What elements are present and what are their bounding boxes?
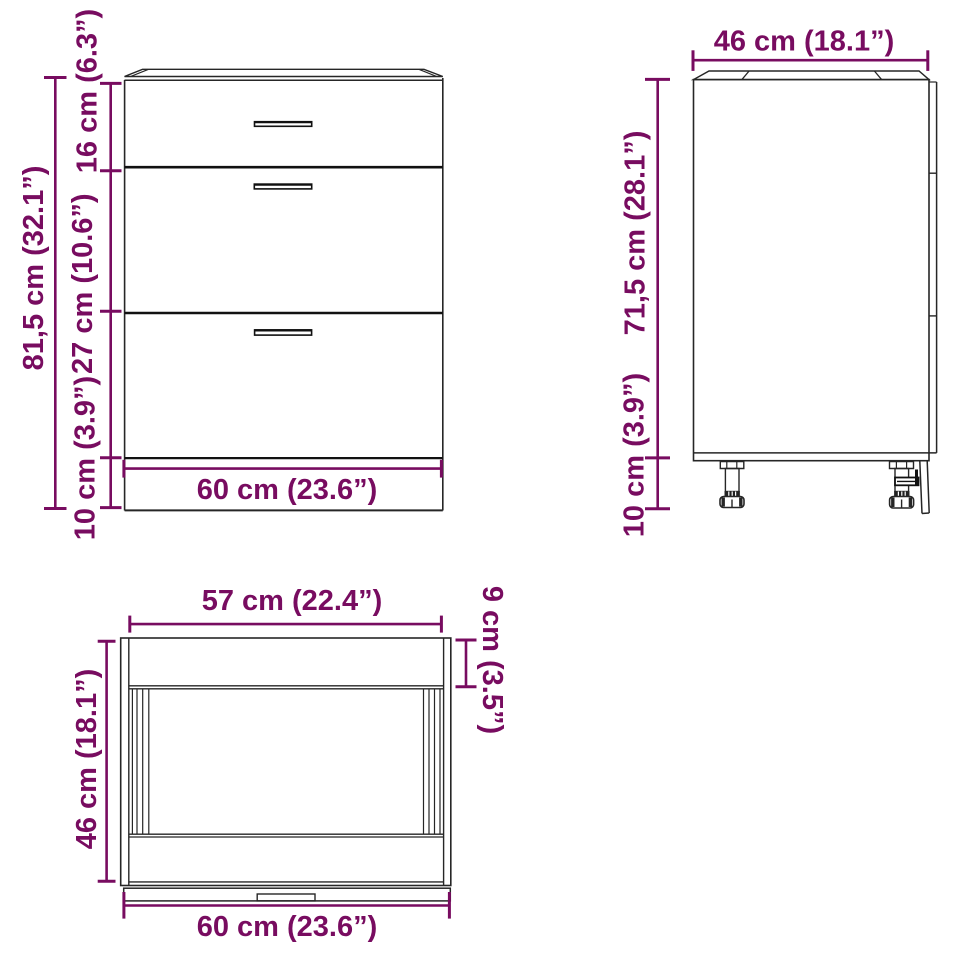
svg-text:10 cm (3.9”): 10 cm (3.9”) xyxy=(70,376,102,540)
svg-text:60 cm (23.6”): 60 cm (23.6”) xyxy=(197,474,378,506)
svg-text:10 cm (3.9”): 10 cm (3.9”) xyxy=(619,373,651,537)
svg-text:57 cm (22.4”): 57 cm (22.4”) xyxy=(202,585,383,617)
svg-text:71,5 cm (28.1”): 71,5 cm (28.1”) xyxy=(620,131,652,336)
svg-text:81,5 cm (32.1”): 81,5 cm (32.1”) xyxy=(18,166,50,371)
svg-text:46 cm (18.1”): 46 cm (18.1”) xyxy=(714,26,895,58)
svg-text:46 cm (18.1”): 46 cm (18.1”) xyxy=(71,669,103,850)
svg-text:9 cm (3.5”): 9 cm (3.5”) xyxy=(476,586,508,734)
svg-text:60 cm (23.6”): 60 cm (23.6”) xyxy=(197,911,378,943)
svg-text:16 cm (6.3”): 16 cm (6.3”) xyxy=(71,9,103,173)
svg-text:27 cm (10.6”): 27 cm (10.6”) xyxy=(67,193,99,374)
